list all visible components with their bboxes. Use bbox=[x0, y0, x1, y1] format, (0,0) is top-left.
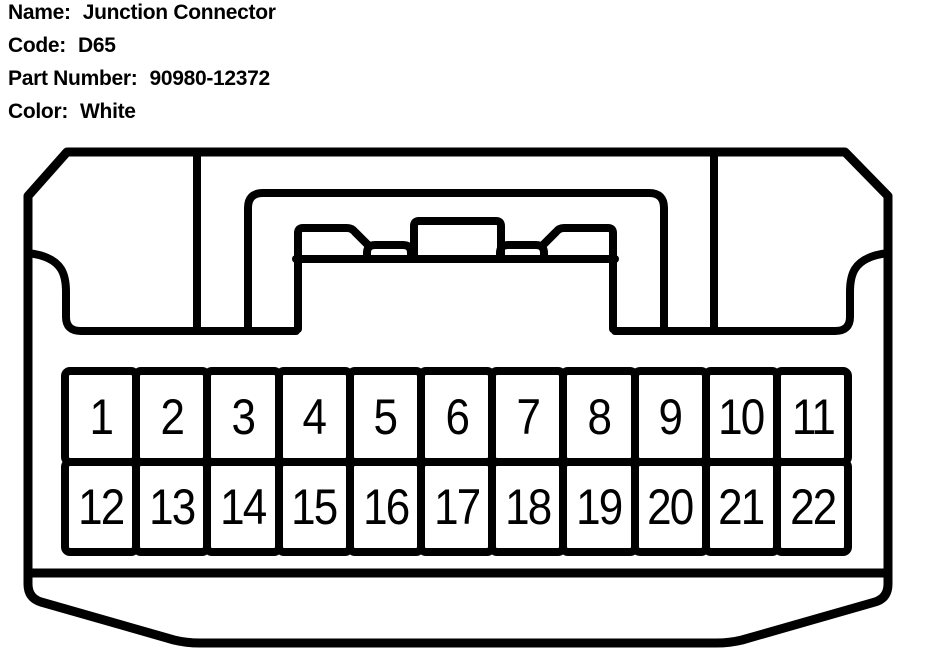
left-recess-outline bbox=[28, 253, 296, 331]
pin-5-number: 5 bbox=[374, 392, 397, 442]
pin-8: 8 bbox=[559, 367, 638, 466]
pin-row-top: 1 2 3 4 5 6 7 8 9 10 11 bbox=[61, 367, 852, 466]
pin-3-number: 3 bbox=[232, 392, 255, 442]
pin-1: 1 bbox=[61, 367, 140, 466]
pin-6-number: 6 bbox=[445, 392, 468, 442]
pin-3: 3 bbox=[203, 367, 282, 466]
pin-12-number: 12 bbox=[78, 482, 123, 532]
pin-14-number: 14 bbox=[220, 482, 265, 532]
pin-17-number: 17 bbox=[434, 482, 479, 532]
pin-18-number: 18 bbox=[505, 482, 550, 532]
pin-5: 5 bbox=[346, 367, 425, 466]
center-lock-tab bbox=[414, 221, 501, 259]
pin-6: 6 bbox=[417, 367, 496, 466]
pin-19: 19 bbox=[559, 458, 638, 556]
pin-19-number: 19 bbox=[576, 482, 621, 532]
pin-20-number: 20 bbox=[647, 482, 692, 532]
pin-18: 18 bbox=[488, 458, 567, 556]
lock-groove-left bbox=[298, 228, 369, 329]
pin-13-number: 13 bbox=[149, 482, 194, 532]
pin-7-number: 7 bbox=[516, 392, 539, 442]
pin-4-number: 4 bbox=[303, 392, 326, 442]
pin-16: 16 bbox=[346, 458, 425, 556]
pin-10-number: 10 bbox=[719, 392, 764, 442]
right-recess-outline bbox=[615, 253, 888, 331]
pin-grid: 1 2 3 4 5 6 7 8 9 10 11 12 13 14 15 16 1… bbox=[61, 367, 852, 556]
pin-11-number: 11 bbox=[791, 392, 833, 442]
pin-15: 15 bbox=[275, 458, 354, 556]
pin-20: 20 bbox=[631, 458, 710, 556]
pin-2-number: 2 bbox=[160, 392, 183, 442]
pin-2: 2 bbox=[132, 367, 211, 466]
pin-9-number: 9 bbox=[659, 392, 682, 442]
pin-12: 12 bbox=[61, 458, 140, 556]
pin-22: 22 bbox=[773, 458, 852, 556]
pin-13: 13 bbox=[132, 458, 211, 556]
pin-1-number: 1 bbox=[89, 392, 112, 442]
pin-8-number: 8 bbox=[588, 392, 611, 442]
pin-16-number: 16 bbox=[363, 482, 408, 532]
pin-17: 17 bbox=[417, 458, 496, 556]
pin-4: 4 bbox=[275, 367, 354, 466]
pin-21-number: 21 bbox=[719, 482, 764, 532]
pin-11: 11 bbox=[773, 367, 852, 466]
pin-9: 9 bbox=[631, 367, 710, 466]
pin-10: 10 bbox=[702, 367, 781, 466]
pin-15-number: 15 bbox=[291, 482, 336, 532]
connector-drawing bbox=[0, 0, 928, 658]
pin-7: 7 bbox=[488, 367, 567, 466]
pin-row-bottom: 12 13 14 15 16 17 18 19 20 21 22 bbox=[61, 466, 852, 556]
pin-21: 21 bbox=[702, 458, 781, 556]
pin-14: 14 bbox=[203, 458, 282, 556]
lock-groove-right bbox=[542, 228, 613, 329]
pin-22-number: 22 bbox=[790, 482, 835, 532]
